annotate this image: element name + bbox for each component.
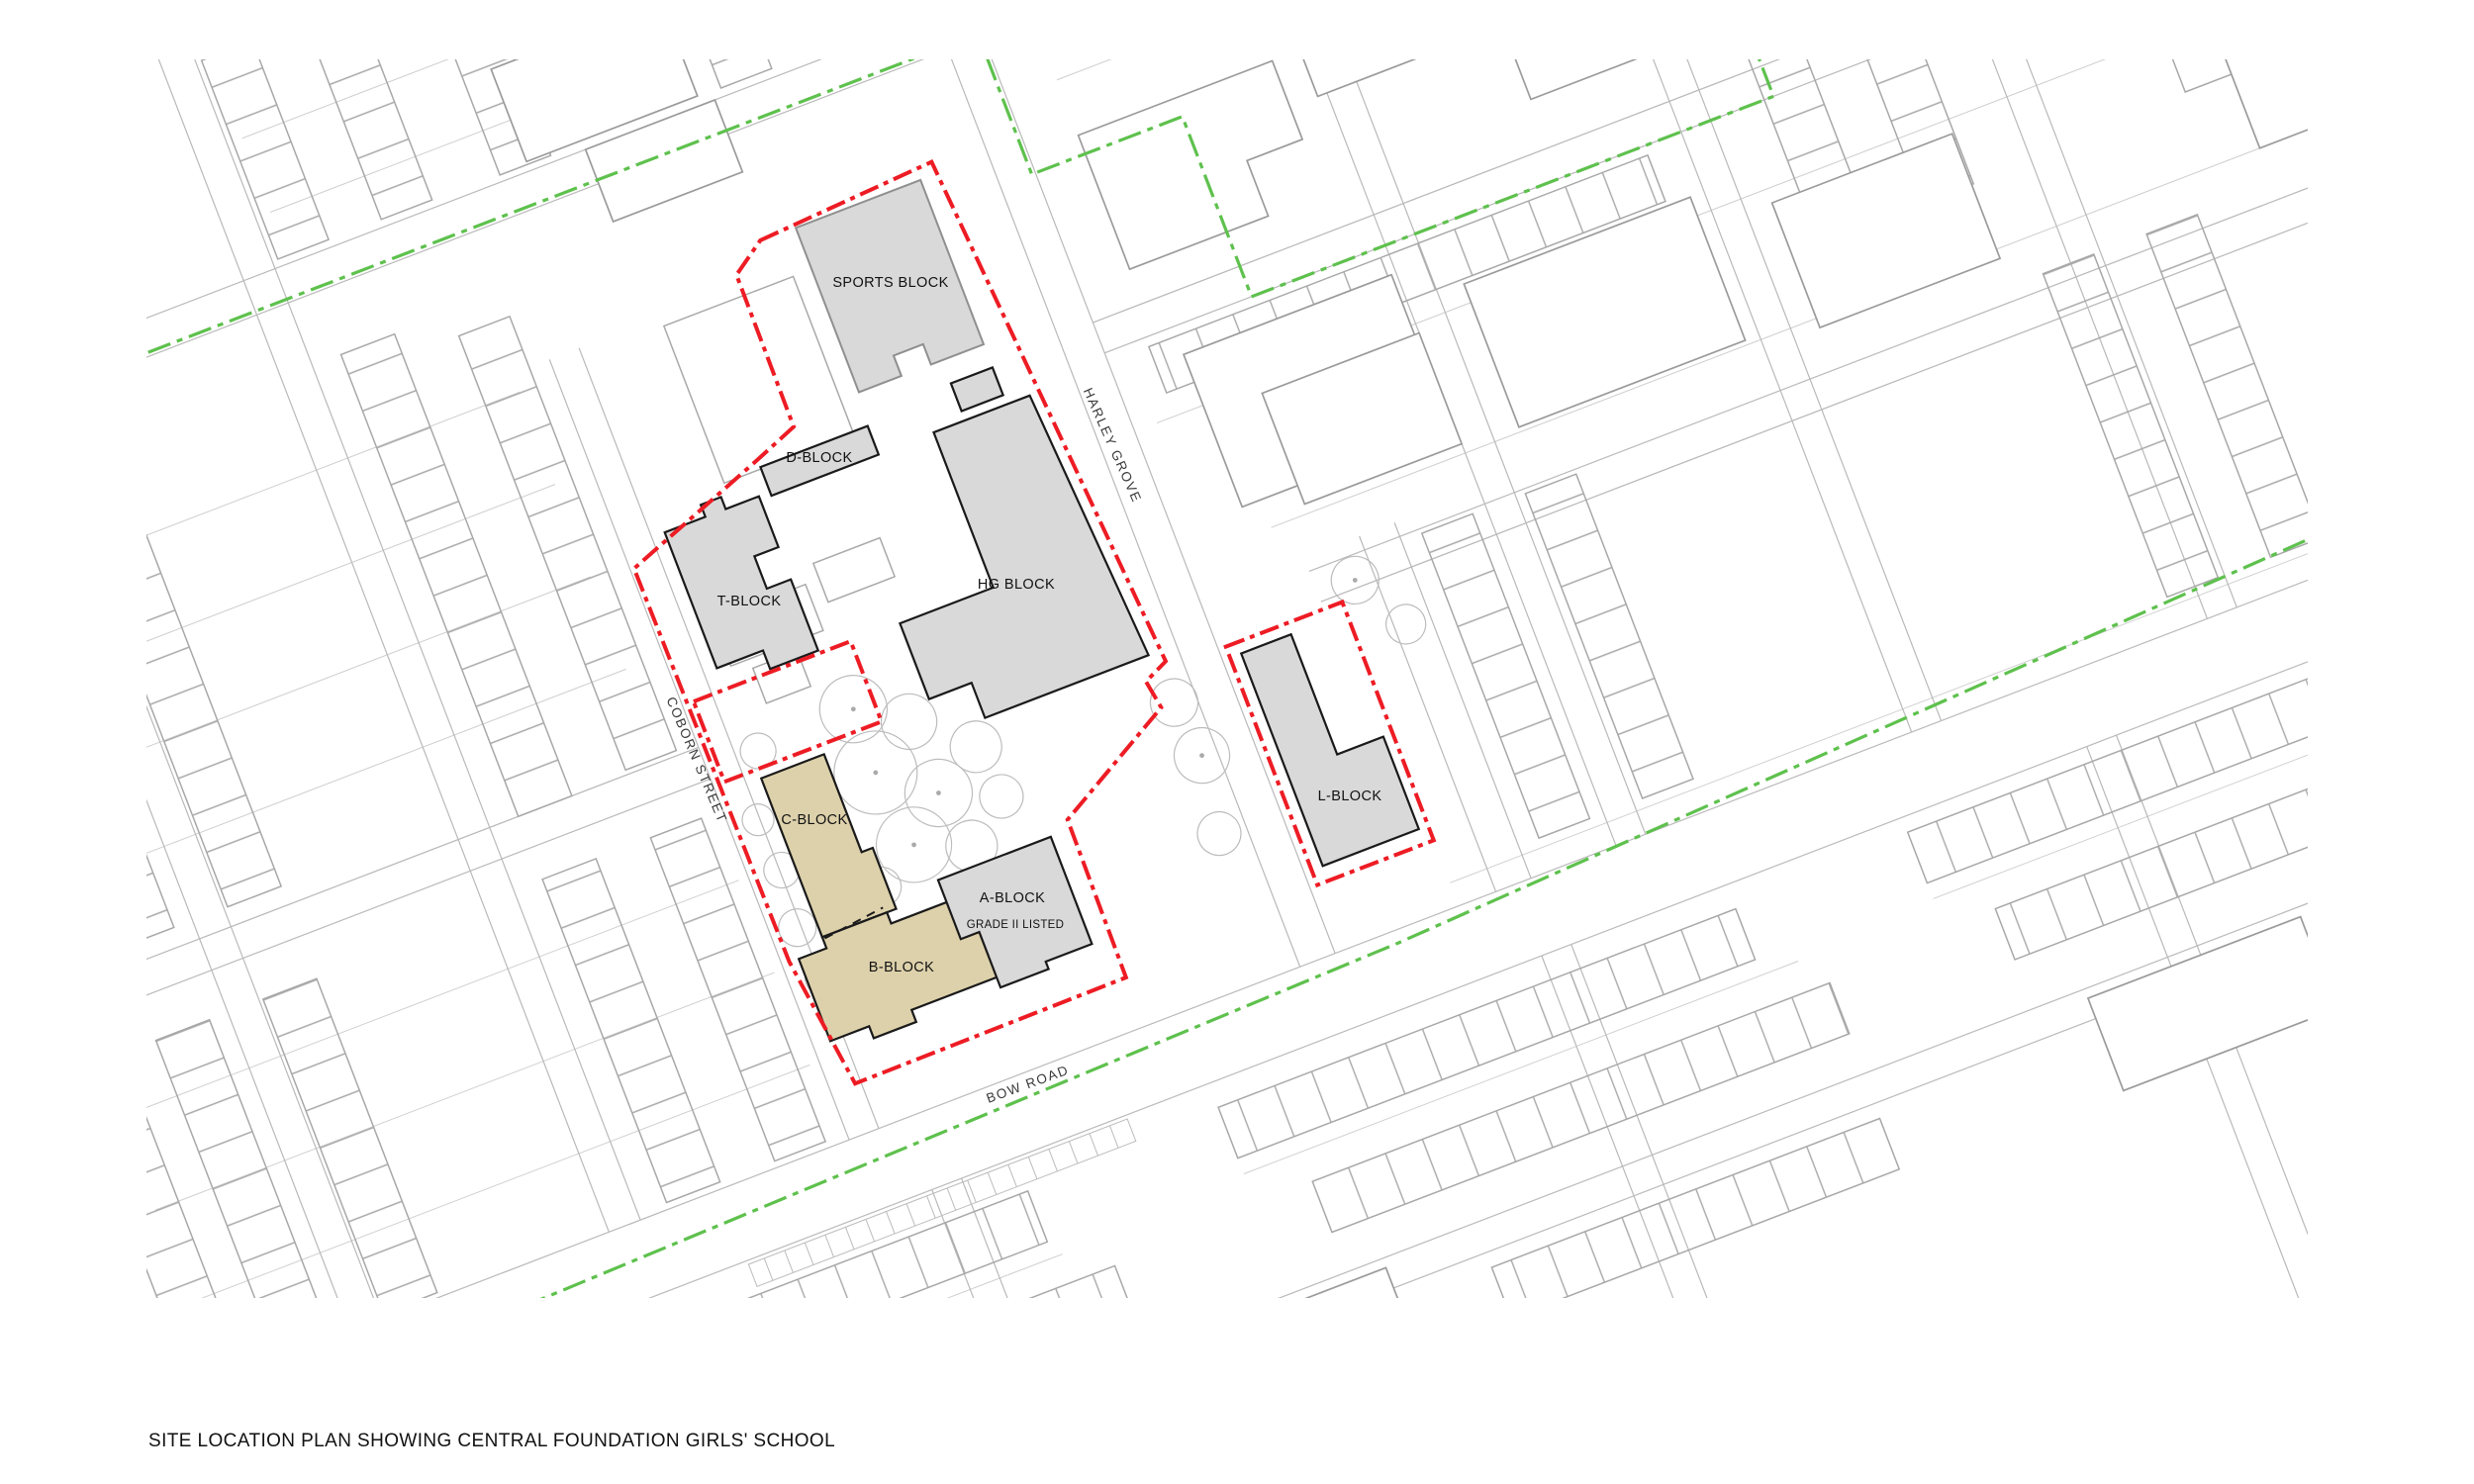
harley-grove-label: HARLEY GROVE [1081,386,1145,506]
site-location-plan: SPORTS BLOCK D-BLOCK T-BLOCK HG BLOCK C-… [0,0,2474,1484]
sports-block-label: SPORTS BLOCK [832,275,948,291]
l-block-label: L-BLOCK [1318,788,1382,804]
caretaker-building-footprint [951,367,1003,411]
hg-block-footprint [840,389,1148,734]
plan-canvas: SPORTS BLOCK D-BLOCK T-BLOCK HG BLOCK C-… [0,0,2474,1484]
map-area [0,0,2474,1484]
b-block-label: B-BLOCK [869,960,934,975]
a-block-label: A-BLOCK [980,890,1045,906]
t-block-footprint [660,484,818,687]
a-block-sublabel: GRADE II LISTED [967,919,1064,931]
l-block-footprint [1241,616,1419,866]
t-block-label: T-BLOCK [717,594,782,609]
hg-block-label: HG BLOCK [978,577,1055,593]
c-block-label: C-BLOCK [781,812,847,828]
terrace-rows-horizontal [243,0,2474,1484]
plan-title: SITE LOCATION PLAN SHOWING CENTRAL FOUND… [148,1431,835,1451]
d-block-label: D-BLOCK [786,450,852,466]
